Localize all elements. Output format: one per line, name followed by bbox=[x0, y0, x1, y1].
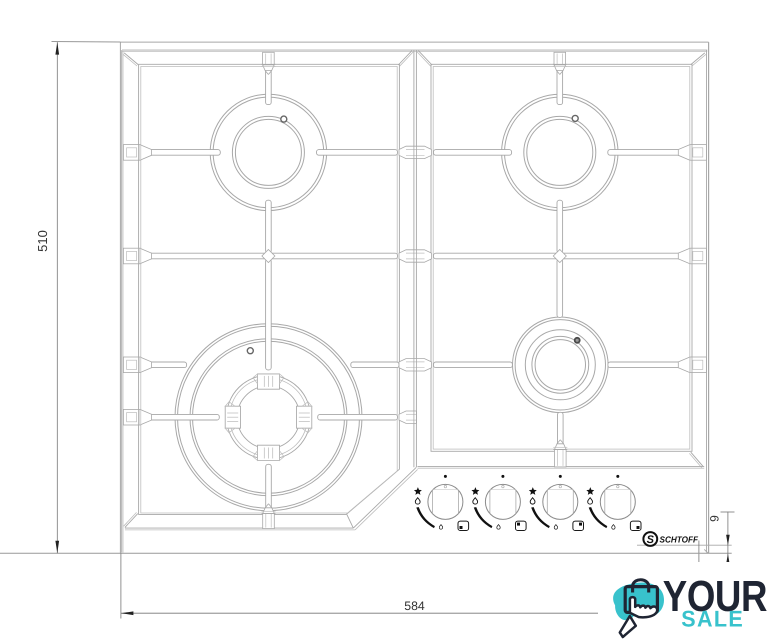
svg-text:510: 510 bbox=[35, 230, 50, 252]
svg-text:584: 584 bbox=[404, 599, 425, 613]
svg-text:SALE: SALE bbox=[681, 605, 744, 631]
svg-text:SCHTOFF: SCHTOFF bbox=[660, 535, 699, 545]
svg-text:S: S bbox=[647, 534, 655, 546]
svg-text:9: 9 bbox=[708, 515, 722, 522]
